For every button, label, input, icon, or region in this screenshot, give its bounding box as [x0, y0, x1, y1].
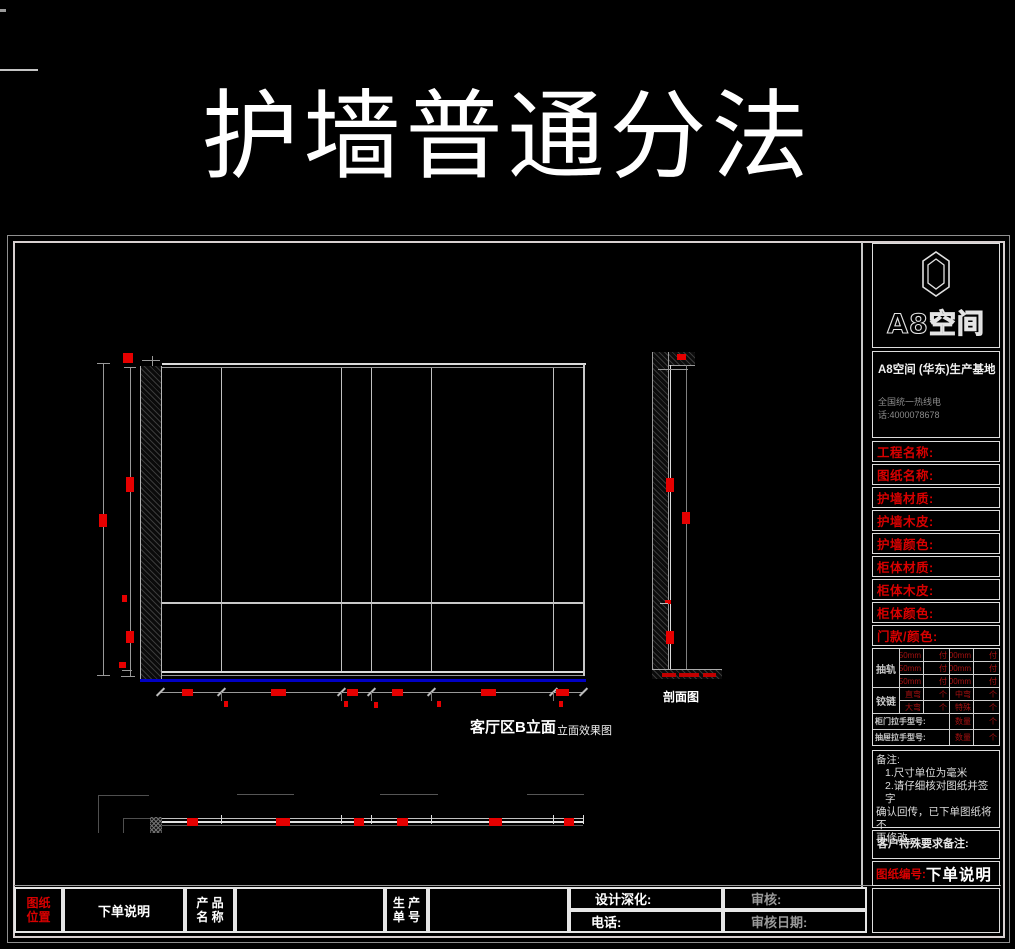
product-name-label-cell: 产 品 名 称 [185, 887, 235, 933]
product-name-label-2: 名 称 [196, 910, 223, 924]
dimension-mark [559, 701, 563, 707]
base-name: A8空间 (华东)生产基地 [878, 361, 999, 377]
elevation-bottom-line [162, 671, 584, 673]
hinge-cell[interactable]: 个 [974, 701, 999, 713]
rail-cell[interactable]: 500mm [950, 675, 973, 687]
elevation-label: 客厅区B立面 [470, 716, 556, 737]
dim-tick [122, 670, 132, 671]
rail-cell[interactable]: 付 [974, 662, 999, 674]
dimension-mark [123, 353, 133, 363]
phone-cell[interactable]: 电话: [569, 910, 723, 933]
dimension-mark [397, 818, 408, 826]
door-handle-label: 柜门拉手型号: [873, 714, 949, 729]
dim-tick [121, 676, 135, 677]
customer-note-label: 客户特殊要求备注: [877, 838, 969, 850]
dimension-mark [187, 818, 198, 826]
order-number-label-cell: 生 产 单 号 [385, 887, 428, 933]
corner-mark [0, 9, 6, 12]
door-handle-qty[interactable]: 数量 [950, 714, 973, 729]
order-number-label-2: 单 号 [393, 910, 420, 924]
drawer-handle-qty[interactable]: 数量 [950, 730, 973, 745]
plan-tick [583, 815, 584, 824]
logo-box: A8空间 [872, 243, 1000, 348]
page-title: 护墙普通分法 [0, 84, 1015, 191]
panel-divider [341, 368, 342, 671]
dimension-mark [126, 477, 134, 492]
rail-cell[interactable]: 付 [924, 675, 949, 687]
notes-line: 确认回传，已下单图纸将不 [876, 806, 997, 832]
plan-panel-line [162, 821, 583, 823]
dimension-mark [481, 689, 496, 696]
corner-dash [0, 69, 38, 71]
field-cabinet-veneer[interactable]: 柜体木皮: [872, 579, 1000, 600]
dimension-mark [99, 514, 107, 527]
dim-bracket [152, 356, 153, 366]
review-cell[interactable]: 审核: [723, 887, 867, 910]
elevation-sublabel: 立面效果图 [557, 722, 612, 738]
dim-bracket [142, 360, 160, 361]
section-dim-top [658, 369, 688, 370]
drawer-handle-unit[interactable]: 个 [974, 730, 999, 745]
drawer-handle-label: 抽屉拉手型号: [873, 730, 949, 745]
field-door-style-color[interactable]: 门款/颜色: [872, 625, 1000, 646]
field-cabinet-material[interactable]: 柜体材质: [872, 556, 1000, 577]
dimension-mark [666, 478, 674, 492]
plan-ref-line [237, 794, 294, 795]
plan-ref-line [527, 794, 584, 795]
rail-cell[interactable]: 400mm [950, 662, 973, 674]
plan-tick [221, 815, 222, 824]
notes-line: 2.请仔细核对图纸并签字 [876, 780, 997, 806]
drawing-number-label: 图纸编号: [876, 866, 926, 882]
plan-panel-line [162, 825, 583, 826]
plan-wall-line [98, 795, 99, 833]
field-panel-veneer[interactable]: 护墙木皮: [872, 510, 1000, 531]
logo-text: A8空间 [873, 302, 999, 341]
dimension-mark [374, 702, 378, 708]
dimension-mark [564, 818, 574, 826]
dimension-mark [182, 689, 193, 696]
notes-box: 备注: 1.尺寸单位为毫米 2.请仔细核对图纸并签字 确认回传，已下单图纸将不 … [872, 750, 1000, 828]
hinge-cell[interactable]: 个 [924, 688, 949, 700]
hinge-cell[interactable]: 特殊 [950, 701, 973, 713]
rail-label: 抽轨 [873, 649, 899, 687]
dimension-mark [119, 662, 126, 668]
design-cell[interactable]: 设计深化: [569, 887, 723, 910]
sheet-position-value-cell[interactable]: 下单说明 [63, 887, 185, 933]
dim-tick [97, 363, 110, 364]
rail-cell[interactable]: 付 [974, 649, 999, 661]
dimension-mark [271, 689, 286, 696]
dimension-mark [662, 673, 676, 677]
rail-cell[interactable]: 付 [924, 649, 949, 661]
order-number-value-cell[interactable] [428, 887, 569, 933]
dim-dropper [553, 692, 554, 701]
dim-dropper [341, 692, 342, 701]
plan-wall-line [98, 795, 149, 796]
company-box: A8空间 (华东)生产基地 全国统一热线电话:4000078678 [872, 351, 1000, 438]
dimension-mark [703, 673, 716, 677]
plan-tick [341, 815, 342, 824]
dimension-mark [437, 701, 441, 707]
plan-tick [553, 815, 554, 824]
dimension-mark [677, 354, 686, 360]
dimension-mark [224, 701, 228, 707]
review-date-cell[interactable]: 审核日期: [723, 910, 867, 933]
phone-label: 电话: [571, 912, 621, 931]
plan-tick [431, 815, 432, 824]
a8-logo-icon [919, 251, 953, 297]
panel-right-edge [583, 364, 585, 676]
field-cabinet-color[interactable]: 柜体颜色: [872, 602, 1000, 623]
sheet-position-value: 下单说明 [98, 901, 150, 920]
sidebar-empty-box [872, 888, 1000, 933]
plan-panel-line [162, 818, 583, 819]
dimension-mark [347, 689, 358, 696]
rail-cell[interactable]: 付 [974, 675, 999, 687]
dimension-mark [489, 818, 502, 826]
field-drawing-name[interactable]: 图纸名称: [872, 464, 1000, 485]
sheet-position-cell: 图纸 位置 [14, 887, 63, 933]
dimension-mark [122, 595, 127, 602]
plan-ref-line [380, 794, 438, 795]
cad-sheet: { "title": "护墙普通分法", "drawing": { "eleva… [0, 0, 1015, 949]
sheet-position-label-1: 图纸 [26, 896, 50, 910]
rail-cell[interactable]: 300mm [950, 649, 973, 661]
rail-cell[interactable]: 450mm [900, 675, 923, 687]
customer-note-box[interactable]: 客户特殊要求备注: [872, 830, 1000, 859]
review-date-label: 审核日期: [725, 912, 807, 931]
dimension-mark [126, 631, 134, 643]
elevation-mid-rail [162, 602, 584, 604]
field-panel-color[interactable]: 护墙颜色: [872, 533, 1000, 554]
hardware-table: 抽轨 250mm 付 300mm 付 350mm 付 400mm 付 450mm… [872, 648, 1000, 746]
notes-line: 1.尺寸单位为毫米 [876, 767, 997, 780]
dimension-mark [666, 631, 674, 644]
section-wall-hatch [652, 352, 669, 679]
rail-cell[interactable]: 250mm [900, 649, 923, 661]
plan-wall-end-section [150, 817, 162, 833]
dimension-mark [392, 689, 403, 696]
dim-tick [124, 367, 136, 368]
hinge-cell[interactable]: 个 [974, 688, 999, 700]
field-project-name[interactable]: 工程名称: [872, 441, 1000, 462]
dim-dropper [371, 692, 372, 701]
hinge-cell[interactable]: 个 [924, 701, 949, 713]
notes-title: 备注: [876, 754, 997, 767]
hinge-cell[interactable]: 中弯 [950, 688, 973, 700]
field-panel-material[interactable]: 护墙材质: [872, 487, 1000, 508]
door-handle-unit[interactable]: 个 [974, 714, 999, 729]
dimension-mark [556, 689, 569, 696]
dimension-mark [276, 818, 290, 826]
elevation-top-line [162, 363, 586, 365]
dimension-mark [344, 701, 348, 707]
hinge-label: 铰链 [873, 688, 899, 713]
elevation-bottom-line2 [162, 675, 584, 676]
elevation-top-line2 [162, 367, 584, 368]
footer-divider [14, 885, 1001, 886]
plan-wall-line [123, 818, 124, 833]
hinge-cell[interactable]: 直弯 [900, 688, 923, 700]
product-name-value-cell[interactable] [235, 887, 385, 933]
drawing-number-value[interactable]: 下单说明 [926, 863, 992, 885]
sheet-position-label-2: 位置 [26, 910, 50, 924]
panel-divider [221, 368, 222, 671]
drawing-number-box: 图纸编号: 下单说明 [872, 861, 1000, 886]
panel-divider [553, 368, 554, 671]
wall-hatch-left [140, 366, 162, 679]
plan-wall-line [123, 818, 151, 819]
sidebar-divider [861, 242, 863, 933]
section-panel-face [670, 365, 671, 672]
dimension-mark [679, 673, 699, 677]
panel-divider [431, 368, 432, 671]
panel-divider [371, 368, 372, 671]
hinge-cell[interactable]: 大弯 [900, 701, 923, 713]
skirting-line [140, 679, 586, 682]
plan-tick [371, 815, 372, 824]
rail-cell[interactable]: 350mm [900, 662, 923, 674]
product-name-label-1: 产 品 [196, 896, 223, 910]
dimension-mark [354, 818, 364, 826]
dim-dropper [221, 692, 222, 701]
rail-cell[interactable]: 付 [924, 662, 949, 674]
dim-tick [660, 603, 668, 604]
review-label: 审核: [725, 889, 781, 908]
hotline: 全国统一热线电话:4000078678 [878, 395, 999, 421]
design-label: 设计深化: [571, 889, 651, 908]
order-number-label-1: 生 产 [393, 896, 420, 910]
dim-tick [97, 675, 110, 676]
dim-dropper [431, 692, 432, 701]
dimension-mark [682, 512, 690, 524]
section-label: 剖面图 [663, 688, 699, 705]
